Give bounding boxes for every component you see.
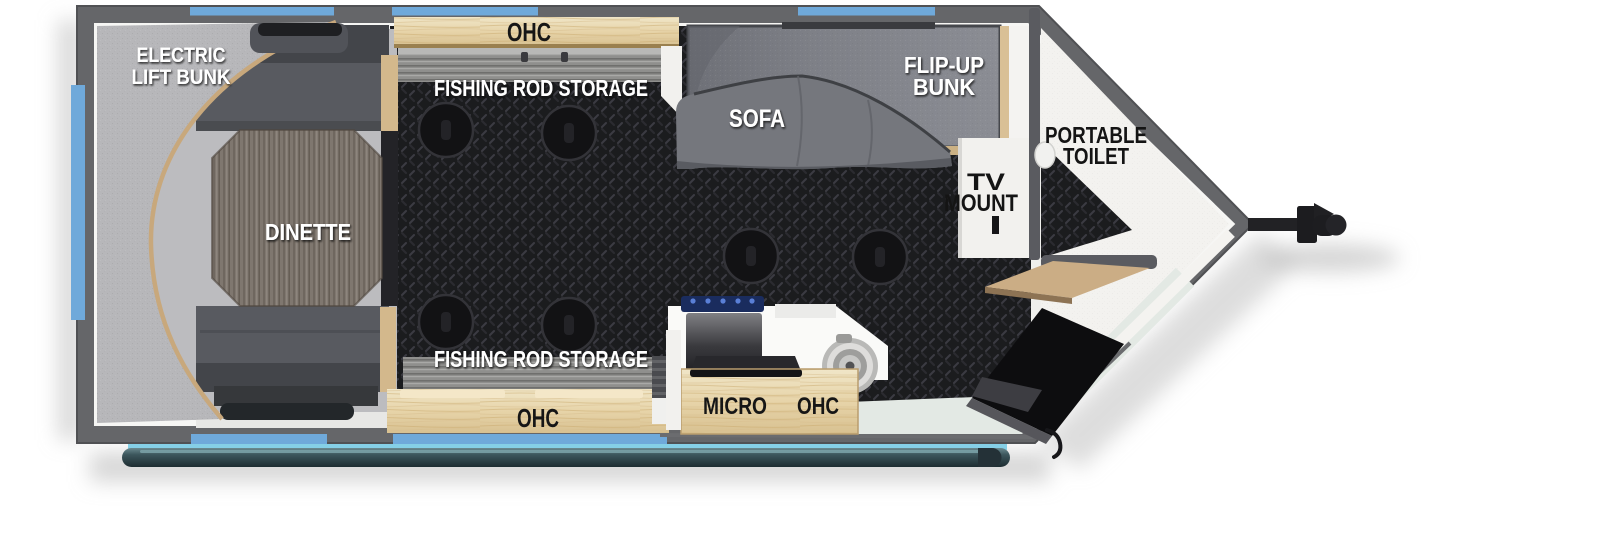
svg-text:BUNK: BUNK (913, 74, 975, 100)
svg-text:OHC: OHC (517, 403, 559, 433)
svg-text:SOFA: SOFA (729, 105, 785, 133)
svg-text:FISHING ROD STORAGE: FISHING ROD STORAGE (434, 346, 648, 372)
svg-text:DINETTE: DINETTE (265, 219, 351, 245)
svg-text:MICRO: MICRO (703, 393, 767, 420)
svg-text:ELECTRIC: ELECTRIC (137, 44, 226, 67)
svg-text:LIFT BUNK: LIFT BUNK (132, 66, 231, 89)
svg-text:TOILET: TOILET (1063, 143, 1129, 169)
svg-text:MOUNT: MOUNT (944, 190, 1018, 217)
svg-text:OHC: OHC (507, 17, 551, 47)
svg-text:OHC: OHC (797, 393, 839, 420)
svg-text:FISHING ROD STORAGE: FISHING ROD STORAGE (434, 75, 648, 101)
